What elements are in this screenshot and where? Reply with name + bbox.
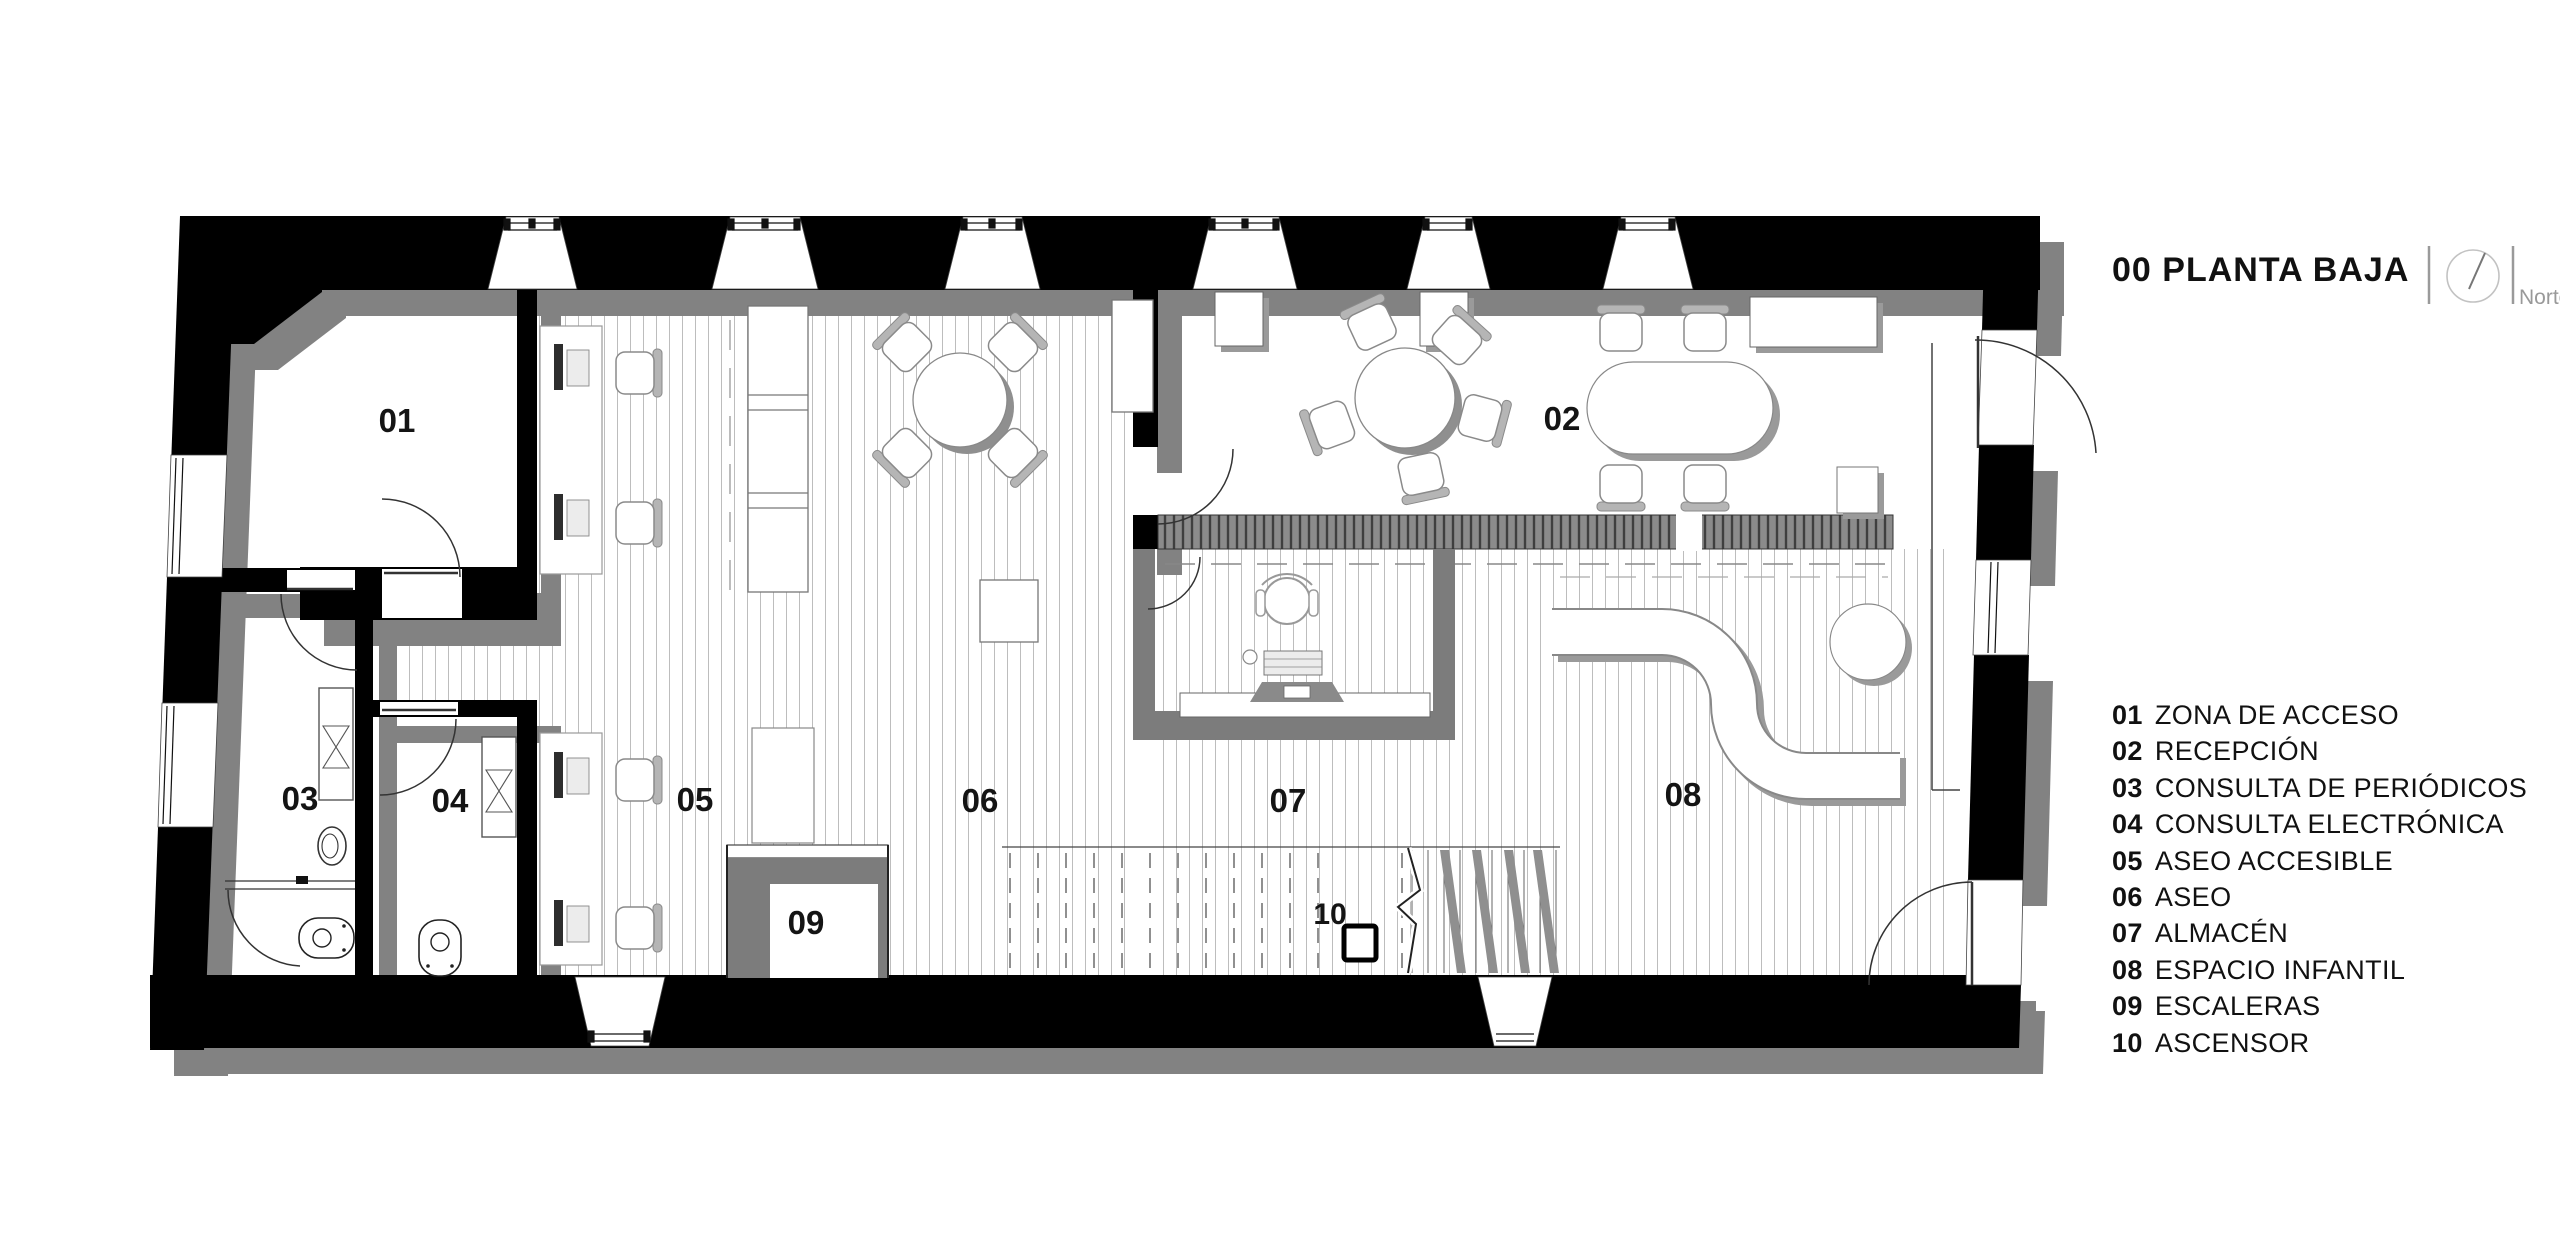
- north-compass-icon: Norte: [2421, 242, 2560, 326]
- room-label-02: 02: [1544, 400, 1581, 437]
- floor-plan: 01 02 03 04 05 06 07 08 09 10: [0, 0, 2560, 1260]
- legend-item-08: 08ESPACIO INFANTIL: [2112, 952, 2527, 988]
- title-block: 00 PLANTA BAJA Norte: [2112, 248, 2560, 326]
- room-label-06: 06: [962, 782, 999, 819]
- room-label-09: 09: [788, 904, 825, 941]
- toilet-icon: [419, 920, 461, 976]
- room-label-04: 04: [432, 782, 469, 819]
- room-label-10: 10: [1313, 898, 1346, 931]
- legend-item-03: 03CONSULTA DE PERIÓDICOS: [2112, 770, 2527, 806]
- legend-item-02: 02RECEPCIÓN: [2112, 733, 2527, 769]
- legend: 01ZONA DE ACCESO 02RECEPCIÓN 03CONSULTA …: [2112, 697, 2527, 1061]
- page-title: 00 PLANTA BAJA: [2112, 248, 2409, 292]
- room-label-01: 01: [379, 402, 416, 439]
- room-label-03: 03: [282, 780, 319, 817]
- north-label: Norte: [2519, 286, 2560, 309]
- legend-item-06: 06ASEO: [2112, 879, 2527, 915]
- legend-item-09: 09ESCALERAS: [2112, 988, 2527, 1024]
- north-needle: [2469, 253, 2485, 289]
- cabinet: [482, 737, 516, 837]
- elevator-box: [1344, 926, 1376, 960]
- legend-item-01: 01ZONA DE ACCESO: [2112, 697, 2527, 733]
- room-label-08: 08: [1665, 776, 1702, 813]
- cabinet: [319, 688, 353, 800]
- legend-item-07: 07ALMACÉN: [2112, 915, 2527, 951]
- legend-item-04: 04CONSULTA ELECTRÓNICA: [2112, 806, 2527, 842]
- room-label-07: 07: [1270, 782, 1307, 819]
- toilet-icon: [299, 918, 354, 958]
- legend-item-05: 05ASEO ACCESIBLE: [2112, 843, 2527, 879]
- table-by-stairs: [752, 728, 814, 843]
- room-label-05: 05: [677, 781, 714, 818]
- legend-item-10: 10ASCENSOR: [2112, 1025, 2527, 1061]
